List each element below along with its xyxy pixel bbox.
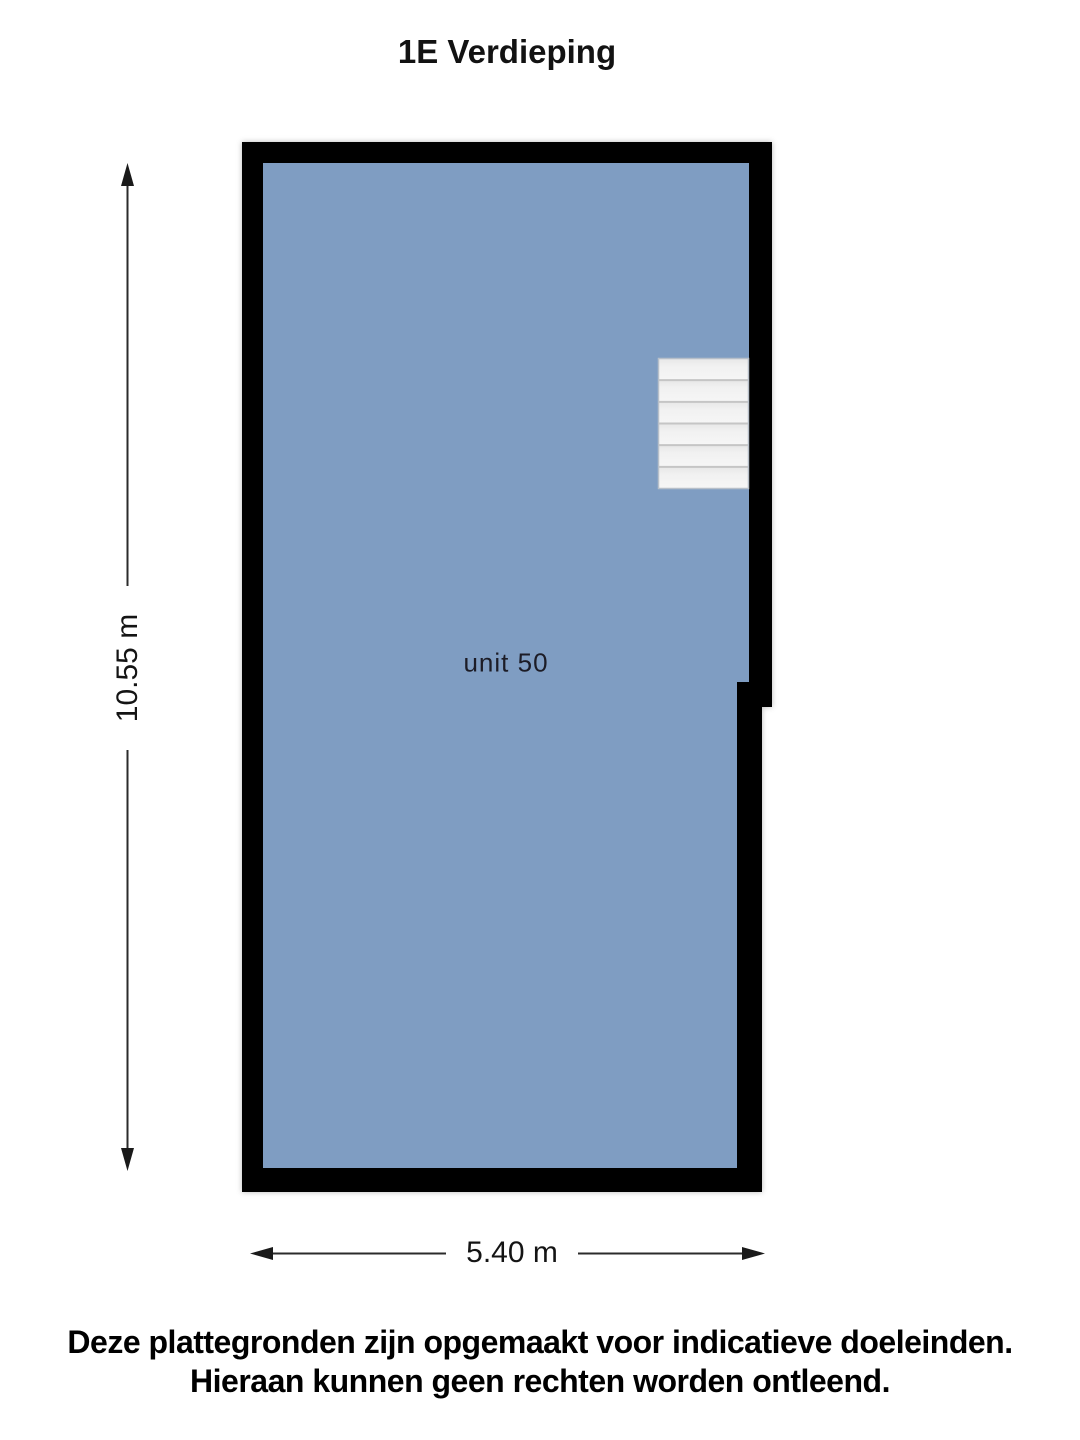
floor-plan-drawing: [0, 0, 1080, 1440]
stair-tread: [659, 445, 749, 467]
arrow-up-icon: [121, 163, 134, 186]
arrow-left-icon: [250, 1247, 273, 1260]
arrow-right-icon: [742, 1247, 765, 1260]
stair-tread: [659, 359, 749, 381]
width-dimension-label: 5.40 m: [466, 1236, 558, 1270]
stair-tread: [659, 402, 749, 424]
floor-plan-page: 1E Verdieping unit 50 10.55 m 5.40 m Dez…: [0, 0, 1080, 1440]
stair-tread: [659, 380, 749, 402]
stair-tread: [659, 424, 749, 446]
height-dimension-label: 10.55 m: [111, 614, 145, 722]
disclaimer-text: Deze plattegronden zijn opgemaakt voor i…: [0, 1323, 1080, 1401]
page-title: 1E Verdieping: [398, 33, 616, 71]
stair-tread: [659, 467, 749, 489]
stairs: [659, 359, 749, 489]
disclaimer-line-1: Deze plattegronden zijn opgemaakt voor i…: [0, 1323, 1080, 1362]
room-label: unit 50: [463, 648, 548, 679]
disclaimer-line-2: Hieraan kunnen geen rechten worden ontle…: [0, 1362, 1080, 1401]
arrow-down-icon: [121, 1148, 134, 1171]
